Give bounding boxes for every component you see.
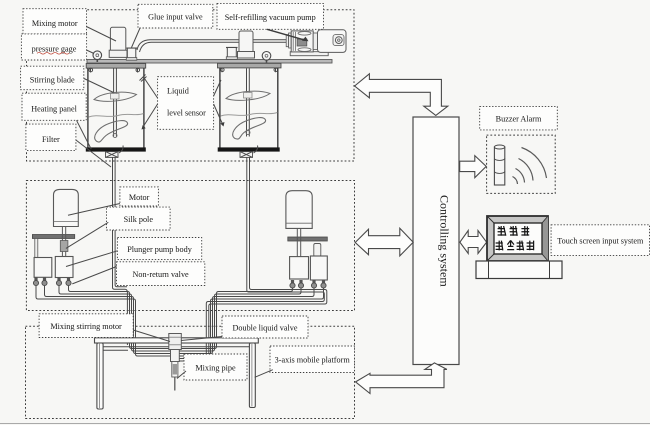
svg-text:Mixing pipe: Mixing pipe [195, 364, 236, 373]
svg-text:Glue input valve: Glue input valve [148, 13, 203, 22]
svg-text:Filter: Filter [42, 135, 60, 144]
svg-text:Stirring blade: Stirring blade [30, 76, 75, 85]
svg-text:3-axis mobile platform: 3-axis mobile platform [275, 356, 351, 365]
svg-text:Controlling system: Controlling system [438, 195, 452, 287]
svg-text:Touch screen input system: Touch screen input system [557, 237, 644, 246]
svg-text:level sensor: level sensor [167, 109, 206, 118]
svg-text:Self-refilling vacuum pump: Self-refilling vacuum pump [225, 13, 316, 22]
svg-text:pressure gage: pressure gage [32, 44, 77, 53]
svg-text:Motor: Motor [129, 193, 150, 202]
svg-text:Plunger pump body: Plunger pump body [127, 245, 192, 254]
svg-text:Mixing motor: Mixing motor [32, 19, 78, 28]
svg-text:Liquid: Liquid [167, 87, 189, 96]
svg-text:Non-return valve: Non-return valve [133, 270, 190, 279]
svg-text:Silk pole: Silk pole [124, 215, 154, 224]
svg-text:Double liquid valve: Double liquid valve [232, 324, 297, 333]
svg-text:Heating panel: Heating panel [31, 105, 77, 114]
svg-text:Mixing stirring motor: Mixing stirring motor [50, 322, 122, 331]
svg-text:Buzzer Alarm: Buzzer Alarm [496, 115, 542, 124]
